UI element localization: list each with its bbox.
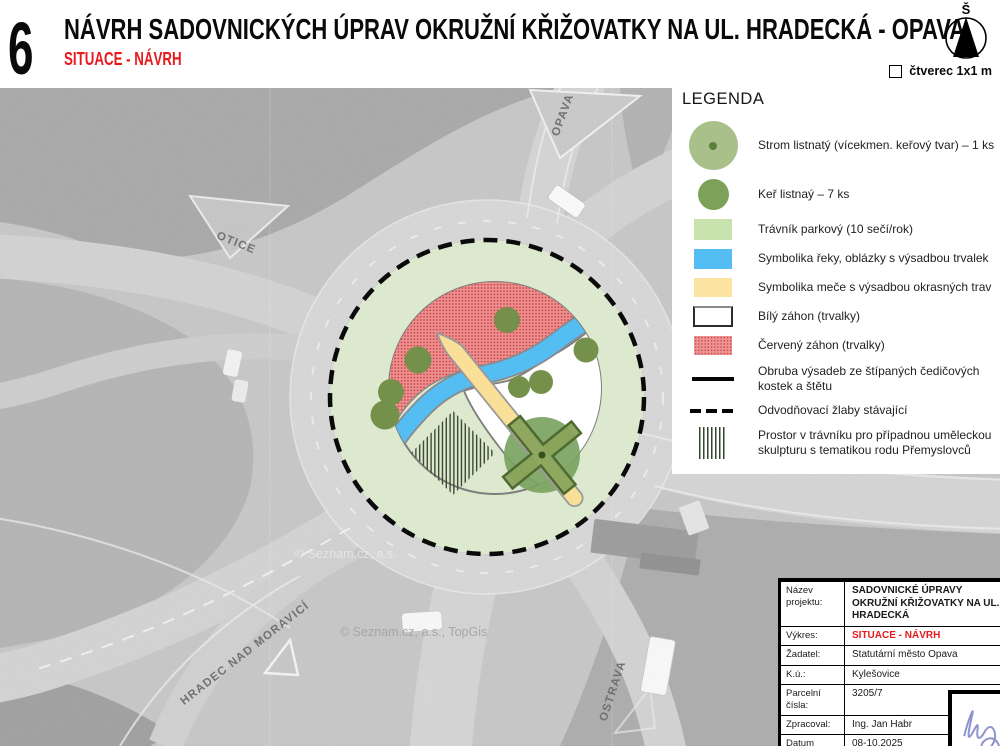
watermark: © Seznam.cz, a.s. (295, 547, 397, 561)
title-block-row: Název projektu: SADOVNICKÉ ÚPRAVY OKRUŽN… (781, 581, 1000, 626)
shrub (405, 347, 432, 374)
legend-item-label: Odvodňovací žlaby stávající (758, 403, 1000, 418)
legend-list: Strom listnatý (vícekmen. keřový tvar) –… (682, 121, 1000, 459)
watermark: © Seznam.cz, a.s., TopGis (340, 625, 487, 639)
title-block-label: Parcelní čísla: (781, 685, 845, 715)
legend-item: Symbolika meče s výsadbou okrasných trav (682, 278, 1000, 297)
title-block-value: Statutární město Opava (845, 646, 1000, 665)
legend-swatch-icon (690, 409, 737, 413)
legend-item: Keř listnaý – 7 ks (682, 179, 1000, 210)
scale-note-label: čtverec 1x1 m (909, 64, 992, 78)
scale-note: čtverec 1x1 m (889, 64, 992, 78)
shrub (508, 376, 530, 398)
title-block-label: Žadatel: (781, 646, 845, 665)
legend-item-label: Symbolika meče s výsadbou okrasných trav (758, 280, 1000, 295)
title-block-value: SITUACE - NÁVRH (845, 627, 1000, 646)
plan-sheet: 6 NÁVRH SADOVNICKÝCH ÚPRAV OKRUŽNÍ KŘIŽO… (0, 0, 1000, 746)
sheet-number: 6 (8, 12, 32, 86)
tree-center-dot (539, 452, 546, 459)
legend-swatch-icon (693, 306, 733, 327)
legend-item: Obruba výsadeb ze štípaných čedičových k… (682, 364, 1000, 394)
legend-swatch-icon (694, 336, 732, 355)
legend-swatch-icon (692, 377, 734, 381)
title-block-label: Název projektu: (781, 582, 845, 626)
signature-scribble (964, 711, 999, 746)
legend-item-label: Prostor v trávníku pro případnou uměleck… (758, 428, 1000, 458)
legend-item: Symbolika řeky, oblázky s výsadbou trval… (682, 249, 1000, 269)
legend-item-label: Červený záhon (trvalky) (758, 338, 1000, 353)
title-block-row: K.ú.: Kylešovice (781, 665, 1000, 685)
legend-item-label: Trávník parkový (10 sečí/rok) (758, 222, 1000, 237)
title-block-label: Zpracoval: (781, 716, 845, 735)
legend-item: Prostor v trávníku pro případnou uměleck… (682, 427, 1000, 459)
legend-item-label: Symbolika řeky, oblázky s výsadbou trval… (758, 251, 1000, 266)
north-triangle-icon (953, 17, 979, 57)
page-title: NÁVRH SADOVNICKÝCH ÚPRAV OKRUŽNÍ KŘIŽOVA… (64, 16, 965, 45)
legend-item: Bílý záhon (trvalky) (682, 306, 1000, 327)
legend-item: Trávník parkový (10 sečí/rok) (682, 219, 1000, 240)
shrub (574, 338, 599, 363)
legend-swatch-icon (699, 427, 727, 459)
title-block-value: SADOVNICKÉ ÚPRAVY OKRUŽNÍ KŘIŽOVATKY NA … (845, 582, 1000, 626)
legend-item: Odvodňovací žlaby stávající (682, 403, 1000, 418)
north-arrow: Š (942, 2, 990, 69)
legend-item-label: Obruba výsadeb ze štípaných čedičových k… (758, 364, 1000, 394)
signature-box (948, 690, 1000, 746)
north-label: Š (962, 2, 971, 17)
title-block-label: K.ú.: (781, 666, 845, 685)
title-block-label: Datum zpracování: (781, 735, 845, 746)
page-subtitle: SITUACE - NÁVRH (64, 50, 182, 68)
legend-swatch-icon (694, 219, 732, 240)
legend-heading: LEGENDA (682, 90, 1000, 109)
legend-item-label: Keř listnaý – 7 ks (758, 187, 1000, 202)
title-block-label: Výkres: (781, 627, 845, 646)
legend-swatch-icon (698, 179, 729, 210)
legend-item-label: Bílý záhon (trvalky) (758, 309, 1000, 324)
legend-item: Červený záhon (trvalky) (682, 336, 1000, 355)
title-block-row: Výkres: SITUACE - NÁVRH (781, 626, 1000, 646)
legend-panel: LEGENDA Strom listnatý (vícekmen. keřový… (672, 88, 1000, 474)
shrub (371, 401, 400, 430)
title-block-value: Kylešovice (845, 666, 1000, 685)
shrub (529, 370, 553, 394)
legend-swatch-icon (694, 249, 732, 269)
legend-item: Strom listnatý (vícekmen. keřový tvar) –… (682, 121, 1000, 170)
legend-swatch-icon (694, 278, 732, 297)
square-symbol-icon (889, 65, 902, 78)
shrub (494, 307, 520, 333)
title-block-row: Žadatel: Statutární město Opava (781, 645, 1000, 665)
legend-item-label: Strom listnatý (vícekmen. keřový tvar) –… (758, 138, 1000, 153)
legend-swatch-icon (689, 121, 738, 170)
